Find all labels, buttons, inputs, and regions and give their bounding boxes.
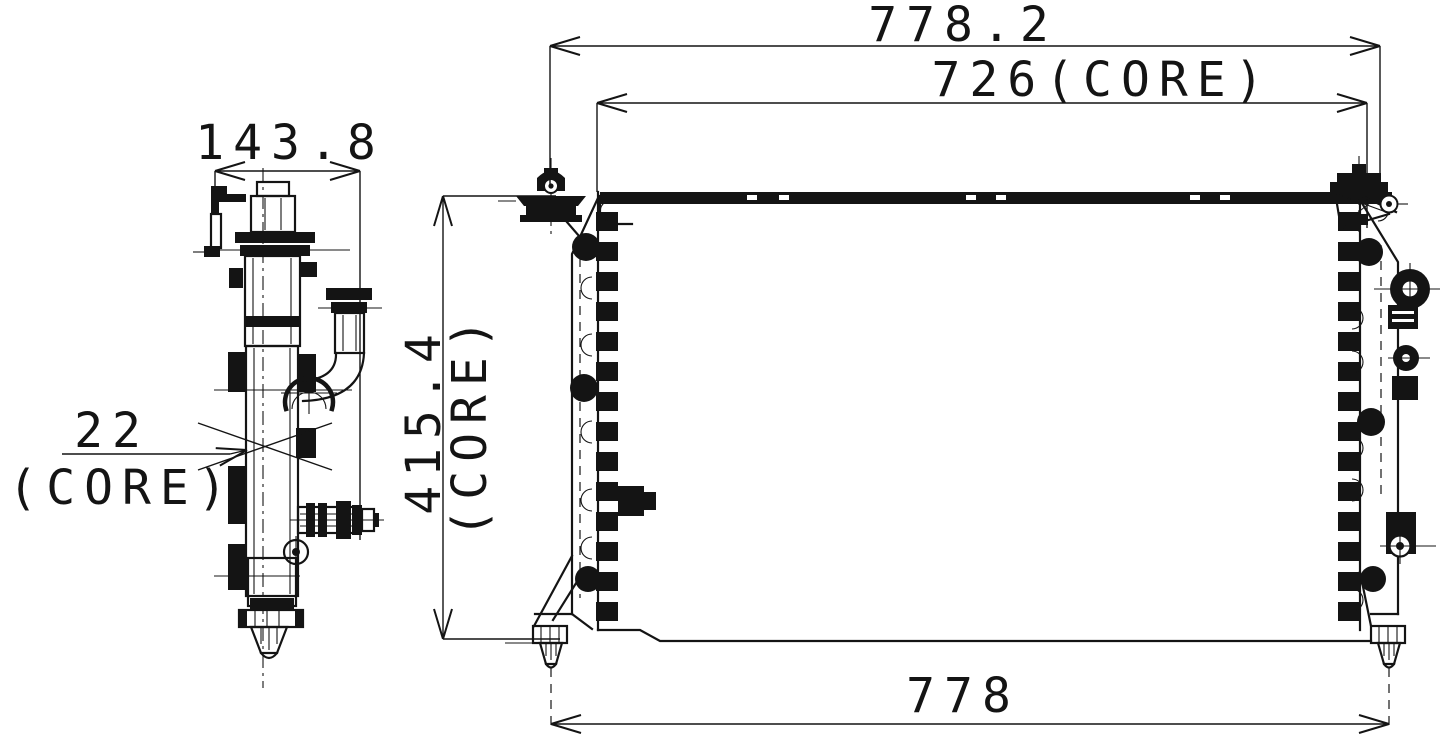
technical-drawing: 778.2 726(CORE) 143.8 415.4 (CORE) 22 (C… bbox=[0, 0, 1440, 749]
front-view bbox=[498, 156, 1440, 668]
dim-mount-span: 778 bbox=[551, 668, 1389, 730]
right-fin-strip bbox=[1338, 212, 1360, 628]
dim-core-thickness-label: 22 bbox=[74, 403, 150, 459]
core-top-bar bbox=[600, 192, 1392, 204]
mount-pin-bottom-right bbox=[1371, 626, 1405, 668]
outlet-pipe bbox=[290, 501, 384, 539]
dim-mount-span-label: 778 bbox=[906, 668, 1020, 724]
right-pipe-fittings bbox=[1374, 263, 1440, 564]
side-bottom-pin bbox=[251, 627, 287, 658]
dim-overall-depth-label: 143.8 bbox=[195, 115, 385, 171]
drawing-canvas: 778.2 726(CORE) 143.8 415.4 (CORE) 22 (C… bbox=[0, 0, 1440, 749]
pipe-clamp bbox=[281, 372, 337, 414]
left-fin-strip bbox=[596, 212, 656, 628]
dim-core-height-qualifier: (CORE) bbox=[442, 310, 498, 537]
mount-pin-bottom-left bbox=[505, 626, 567, 668]
dim-core-width-label: 726(CORE) bbox=[931, 52, 1272, 108]
upper-mount-bracket bbox=[193, 186, 246, 257]
mount-pin-top-left bbox=[498, 158, 586, 236]
tank-body bbox=[228, 256, 317, 596]
dim-core-height: 415.4 (CORE) bbox=[396, 196, 560, 639]
side-view bbox=[193, 168, 384, 688]
dim-overall-width-label: 778.2 bbox=[868, 0, 1058, 53]
tank-cap bbox=[235, 182, 315, 256]
right-tank bbox=[1352, 192, 1398, 630]
tank-bottom bbox=[239, 558, 303, 627]
core-bottom-edge bbox=[598, 630, 1371, 641]
dim-core-thickness: 22 (CORE) bbox=[8, 403, 332, 516]
